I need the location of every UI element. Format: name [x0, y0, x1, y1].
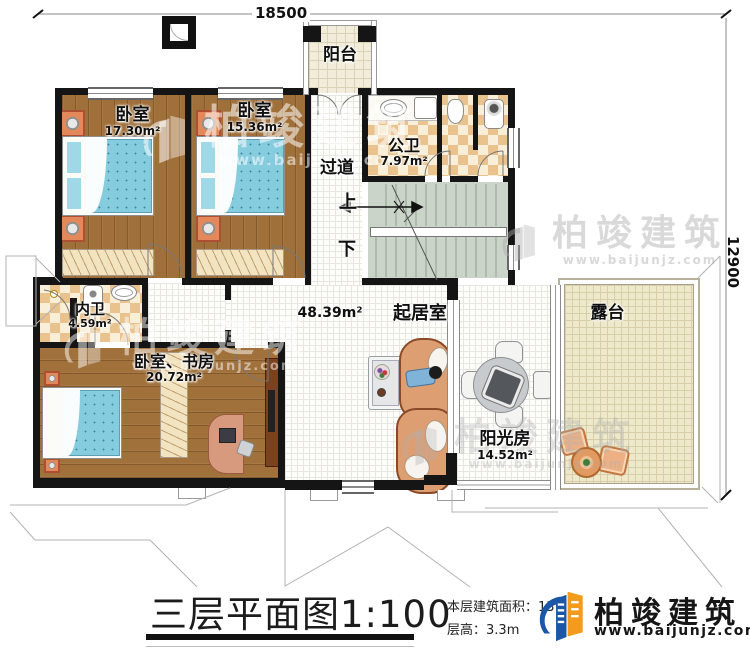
- floor-drain: [50, 290, 58, 298]
- room-label-bedroom2: 卧室 15.36m²: [212, 103, 297, 133]
- window: [218, 87, 283, 100]
- plan-title: 三层平面图1:100: [150, 584, 452, 638]
- toilet: [447, 99, 464, 124]
- room-label-living: 起居室: [384, 305, 456, 324]
- nightstand: [44, 371, 60, 386]
- wall: [55, 278, 148, 285]
- watermark-url: www.baijunjz.com: [563, 252, 718, 269]
- wall: [358, 88, 510, 95]
- window-sill: [178, 488, 206, 499]
- nightstand: [196, 215, 221, 242]
- wall: [503, 176, 510, 182]
- bathtub: [484, 99, 504, 129]
- room-label-sunroom: 阳光房 14.52m²: [468, 431, 542, 461]
- wardrobe: [196, 249, 284, 276]
- wall: [33, 277, 40, 488]
- brand-url: www.baijunjz.com: [594, 623, 750, 639]
- title-underline: [146, 634, 414, 640]
- wall: [130, 342, 235, 348]
- sink: [380, 99, 407, 117]
- wall: [508, 88, 515, 128]
- wall: [225, 283, 231, 300]
- wardrobe: [62, 249, 154, 276]
- wall: [362, 278, 450, 285]
- wall: [285, 480, 342, 490]
- dimension-width: 18500: [252, 4, 310, 22]
- table-item: [377, 388, 386, 397]
- room-label-private-bath: 内卫 4.59m²: [62, 302, 118, 329]
- room-label-corridor: 过道: [312, 160, 362, 178]
- wall: [473, 95, 478, 150]
- bed-headboard: [66, 177, 82, 210]
- cabinet: [414, 97, 437, 119]
- plan-scale: 1:100: [340, 593, 452, 636]
- terrace-table: [571, 447, 602, 478]
- wall: [424, 475, 457, 485]
- brand-logo-icon: [534, 586, 592, 644]
- plan-title-text: 三层平面图: [150, 593, 340, 636]
- floor-height-value: 3.3m: [486, 623, 519, 638]
- stairs-up-label: 上: [336, 194, 360, 213]
- balcony-post: [303, 26, 321, 42]
- wall: [450, 176, 478, 182]
- watermark-name: 柏竣建筑: [552, 216, 728, 252]
- wall: [283, 88, 318, 95]
- wall: [362, 176, 425, 182]
- balcony-post: [358, 26, 376, 42]
- window: [507, 128, 520, 168]
- room-label-public-bath: 公卫 7.97m²: [370, 138, 438, 167]
- window: [342, 480, 374, 494]
- wall: [362, 95, 368, 180]
- desk-monitor: [219, 428, 236, 443]
- tv: [268, 390, 275, 432]
- glass-partition: [457, 480, 550, 490]
- bed-headboard: [200, 141, 216, 174]
- bed-headboard: [66, 141, 82, 174]
- glass-partition: [550, 285, 561, 490]
- wall: [33, 342, 95, 348]
- room-label-terrace: 露台: [580, 305, 635, 323]
- title-underline-thin: [146, 646, 414, 647]
- window: [507, 245, 520, 270]
- room-label-bedroom-study: 卧室、书房 20.72m²: [112, 354, 236, 383]
- wall: [55, 88, 62, 285]
- living-area-value: 48.39m²: [298, 306, 362, 321]
- flower-vase: [374, 364, 390, 380]
- wall: [305, 95, 311, 285]
- bed-headboard: [200, 177, 216, 210]
- person-head: [429, 366, 442, 379]
- wall: [508, 270, 515, 285]
- window-sill: [437, 490, 465, 501]
- wall: [374, 480, 424, 490]
- wall: [153, 88, 218, 95]
- roof-feature: [162, 16, 196, 49]
- nightstand: [60, 215, 85, 242]
- dimension-height: 12900: [724, 229, 742, 295]
- wall: [447, 278, 458, 300]
- sink: [111, 284, 137, 301]
- window-sill: [310, 490, 338, 501]
- nightstand: [60, 110, 85, 137]
- wall: [33, 478, 278, 488]
- watermark: 柏竣建筑 www.baijunjz.com: [498, 216, 728, 269]
- stair-railing: [370, 227, 507, 237]
- room-label-balcony: 阳台: [310, 47, 370, 65]
- stairs-down-label: 下: [335, 241, 359, 260]
- window: [88, 87, 153, 100]
- wall: [278, 342, 285, 488]
- wall: [142, 283, 148, 345]
- nightstand: [44, 458, 60, 473]
- room-label-bedroom1: 卧室 17.30m²: [85, 107, 180, 137]
- wall: [185, 95, 191, 285]
- floor-plan-canvas: 柏竣建筑 www.baijunjz.com 柏竣建筑 www.baijunjz.…: [0, 0, 750, 655]
- closet-floor: [148, 283, 225, 342]
